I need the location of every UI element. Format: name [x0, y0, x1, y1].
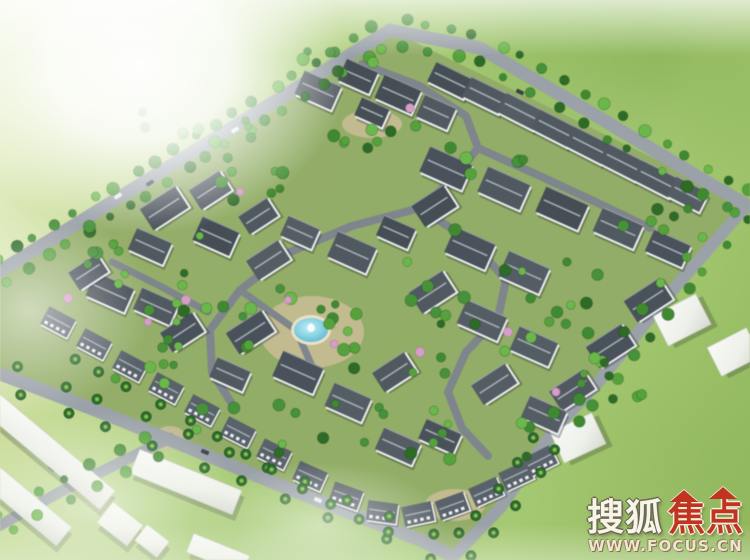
watermark-brand: 搜狐 焦点	[587, 499, 744, 536]
house-roof-icon	[709, 487, 737, 499]
watermark-souhu-text: 搜狐	[587, 499, 663, 536]
watermark: 搜狐 焦点 WWW.FOCUS.CN	[587, 499, 744, 554]
watermark-url: WWW.FOCUS.CN	[587, 539, 744, 554]
aerial-rendering: 搜狐 焦点 WWW.FOCUS.CN	[0, 0, 750, 560]
site-plan-svg	[0, 0, 750, 560]
watermark-jiaodian-logo: 焦点	[668, 499, 744, 536]
watermark-jiaodian-text: 焦点	[668, 496, 744, 539]
house-roof-icon	[670, 490, 698, 502]
